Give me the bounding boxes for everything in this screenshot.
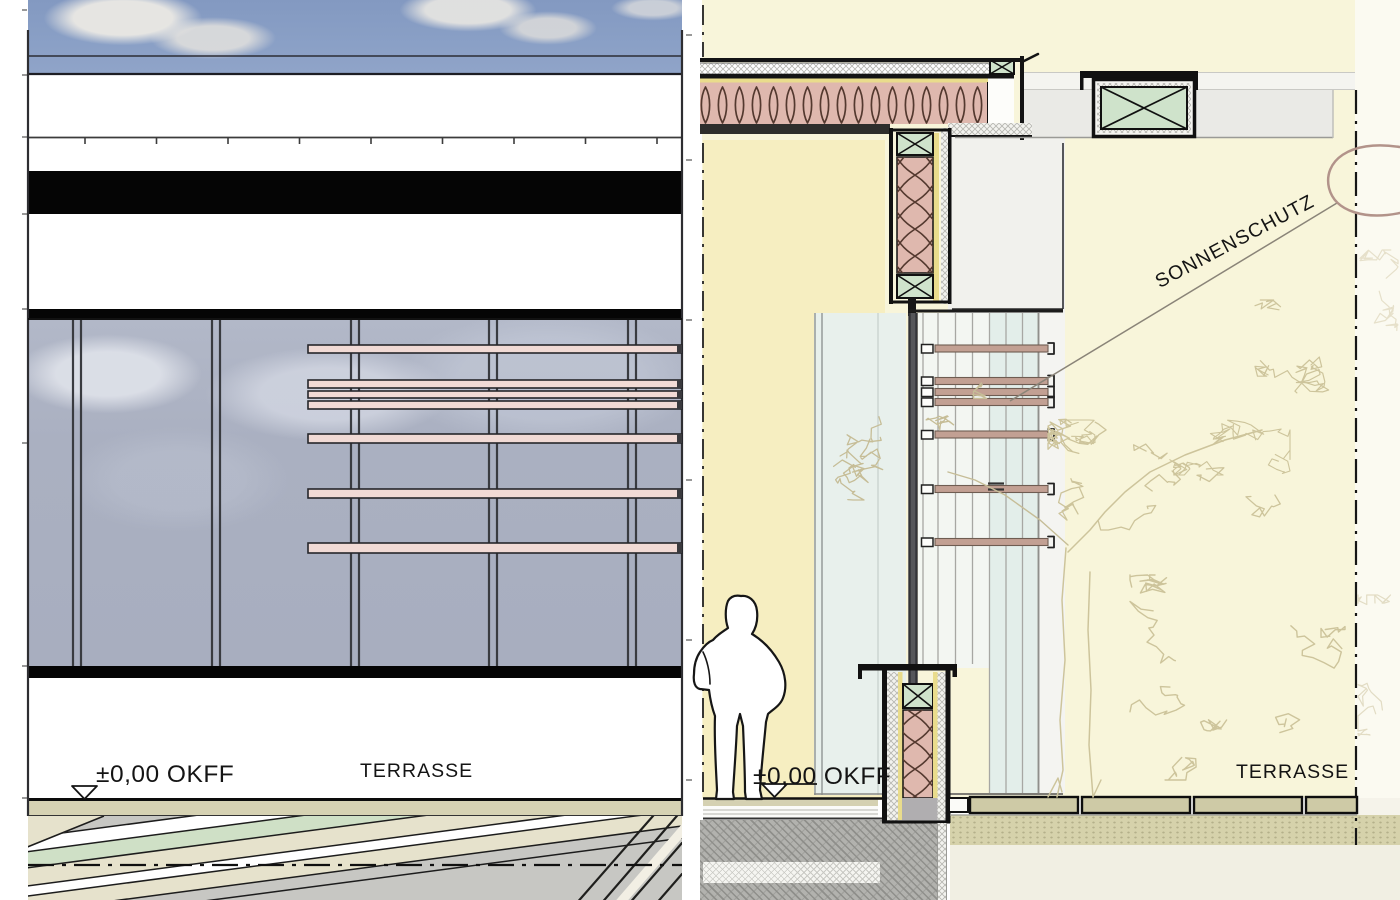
section-margin-strip xyxy=(1355,0,1400,798)
section-roof-fascia-band xyxy=(1024,90,1333,138)
section-outer-column xyxy=(1038,313,1065,793)
elevation-glazing xyxy=(28,319,682,666)
section-terrace-label: TERRASSE xyxy=(1236,761,1349,784)
section-floor-screed xyxy=(703,806,878,818)
section-roof-slab-band xyxy=(1024,72,1355,90)
section-glass-cavity xyxy=(814,313,906,795)
elevation-level-label: ±0,00 OKFF xyxy=(96,761,234,789)
section-terrace-edge xyxy=(1357,798,1400,815)
elevation-black-band-upper xyxy=(28,171,682,214)
elevation-black-band-lower xyxy=(28,666,682,678)
elevation-terrace-label: TERRASSE xyxy=(360,760,473,783)
section-floor-insulation xyxy=(703,862,880,883)
section-floor-finish xyxy=(703,798,878,806)
elevation-black-band-clerestory xyxy=(28,309,682,319)
architectural-drawing: ±0,00 OKFF TERRASSE ±0,00 OKFF TERRASSE … xyxy=(0,0,1400,900)
section-terrace-subsoil xyxy=(950,845,1400,900)
section-facade-recess xyxy=(948,137,1065,313)
elevation-sky xyxy=(28,0,682,74)
elevation-floor-slab xyxy=(28,798,682,816)
section-level-label: ±0,00 OKFF xyxy=(753,763,891,791)
section-terrace-gravel xyxy=(950,815,1400,845)
section-concrete-slab xyxy=(700,820,937,900)
section-outer-pane xyxy=(990,313,1038,793)
